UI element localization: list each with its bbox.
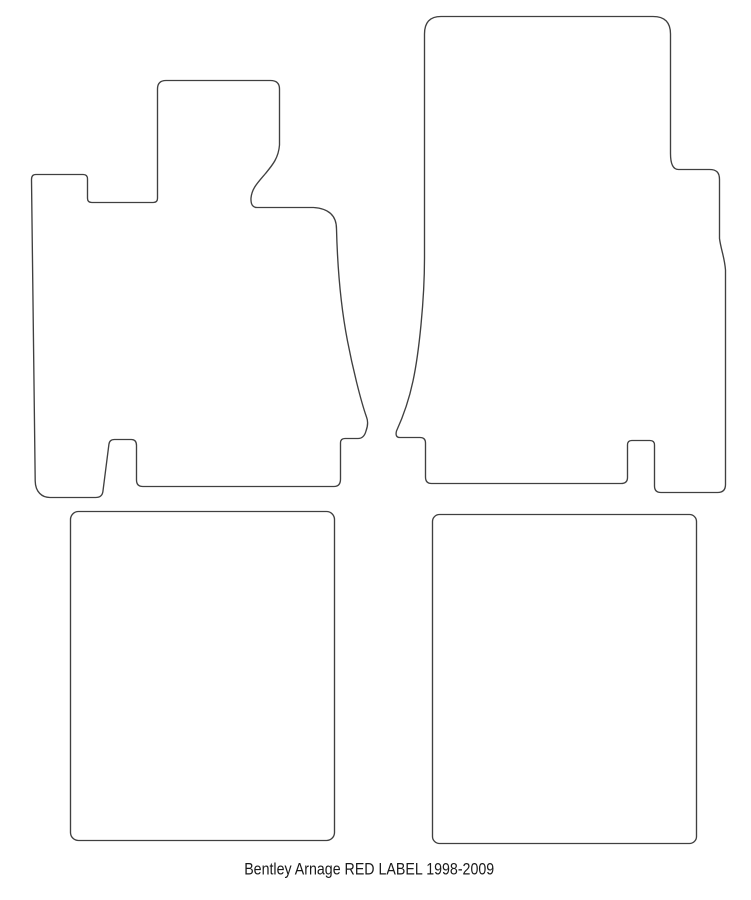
svg-text:Bentley Arnage RED LABEL 1998-: Bentley Arnage RED LABEL 1998-2009 [244, 860, 494, 879]
